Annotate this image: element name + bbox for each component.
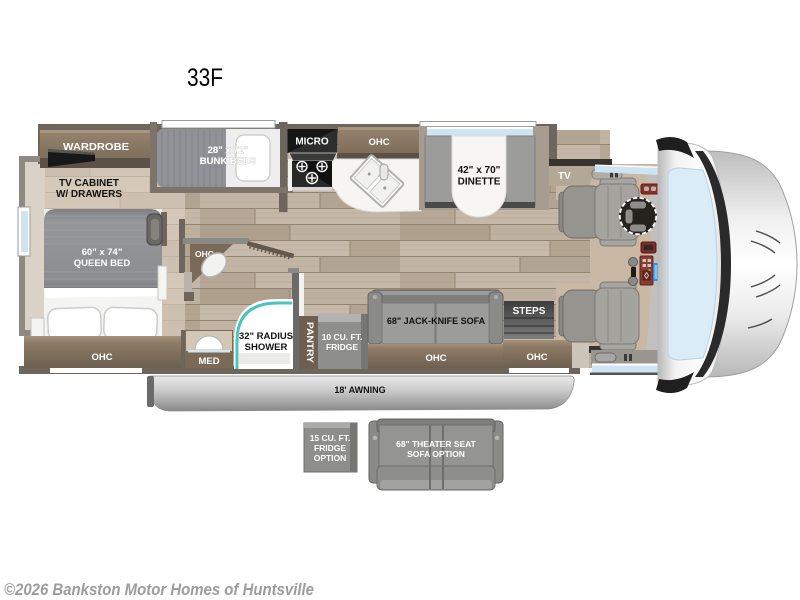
svg-text:33F: 33F bbox=[187, 64, 223, 92]
svg-text:OHC: OHC bbox=[91, 352, 112, 363]
svg-text:MED: MED bbox=[198, 356, 219, 367]
svg-text:FRIDGE: FRIDGE bbox=[314, 443, 346, 453]
svg-text:TV CABINET: TV CABINET bbox=[59, 178, 119, 189]
svg-text:QUEEN BED: QUEEN BED bbox=[74, 258, 131, 269]
svg-text:15 CU. FT.: 15 CU. FT. bbox=[310, 433, 351, 443]
svg-text:68" THEATER SEAT: 68" THEATER SEAT bbox=[396, 439, 477, 449]
svg-text:BUNK BEDS: BUNK BEDS bbox=[200, 156, 256, 167]
svg-text:FRIDGE: FRIDGE bbox=[326, 342, 358, 352]
svg-text:OHC: OHC bbox=[526, 352, 547, 363]
svg-text:42" x 70": 42" x 70" bbox=[458, 165, 501, 176]
svg-text:MICRO: MICRO bbox=[295, 137, 329, 148]
svg-text:10 CU. FT.: 10 CU. FT. bbox=[322, 332, 363, 342]
svg-text:28" x 72": 28" x 72" bbox=[208, 145, 249, 156]
svg-text:©2026 Bankston Motor Homes of: ©2026 Bankston Motor Homes of Huntsville bbox=[4, 581, 314, 599]
svg-text:OPTION: OPTION bbox=[314, 453, 347, 463]
svg-text:32" RADIUS: 32" RADIUS bbox=[239, 331, 293, 342]
svg-text:SOFA OPTION: SOFA OPTION bbox=[407, 449, 465, 459]
svg-text:68" JACK-KNIFE SOFA: 68" JACK-KNIFE SOFA bbox=[387, 316, 486, 326]
svg-text:STEPS: STEPS bbox=[513, 306, 546, 317]
svg-text:DINETTE: DINETTE bbox=[458, 177, 501, 188]
svg-text:SHOWER: SHOWER bbox=[245, 342, 288, 353]
svg-text:PANTRY: PANTRY bbox=[305, 322, 315, 363]
svg-text:OHC: OHC bbox=[425, 353, 446, 364]
svg-text:W/ DRAWERS: W/ DRAWERS bbox=[56, 189, 122, 200]
svg-text:OHC: OHC bbox=[368, 137, 389, 148]
svg-text:18' AWNING: 18' AWNING bbox=[334, 385, 385, 395]
svg-text:60" x 74": 60" x 74" bbox=[82, 247, 123, 258]
svg-text:TV: TV bbox=[558, 171, 571, 182]
